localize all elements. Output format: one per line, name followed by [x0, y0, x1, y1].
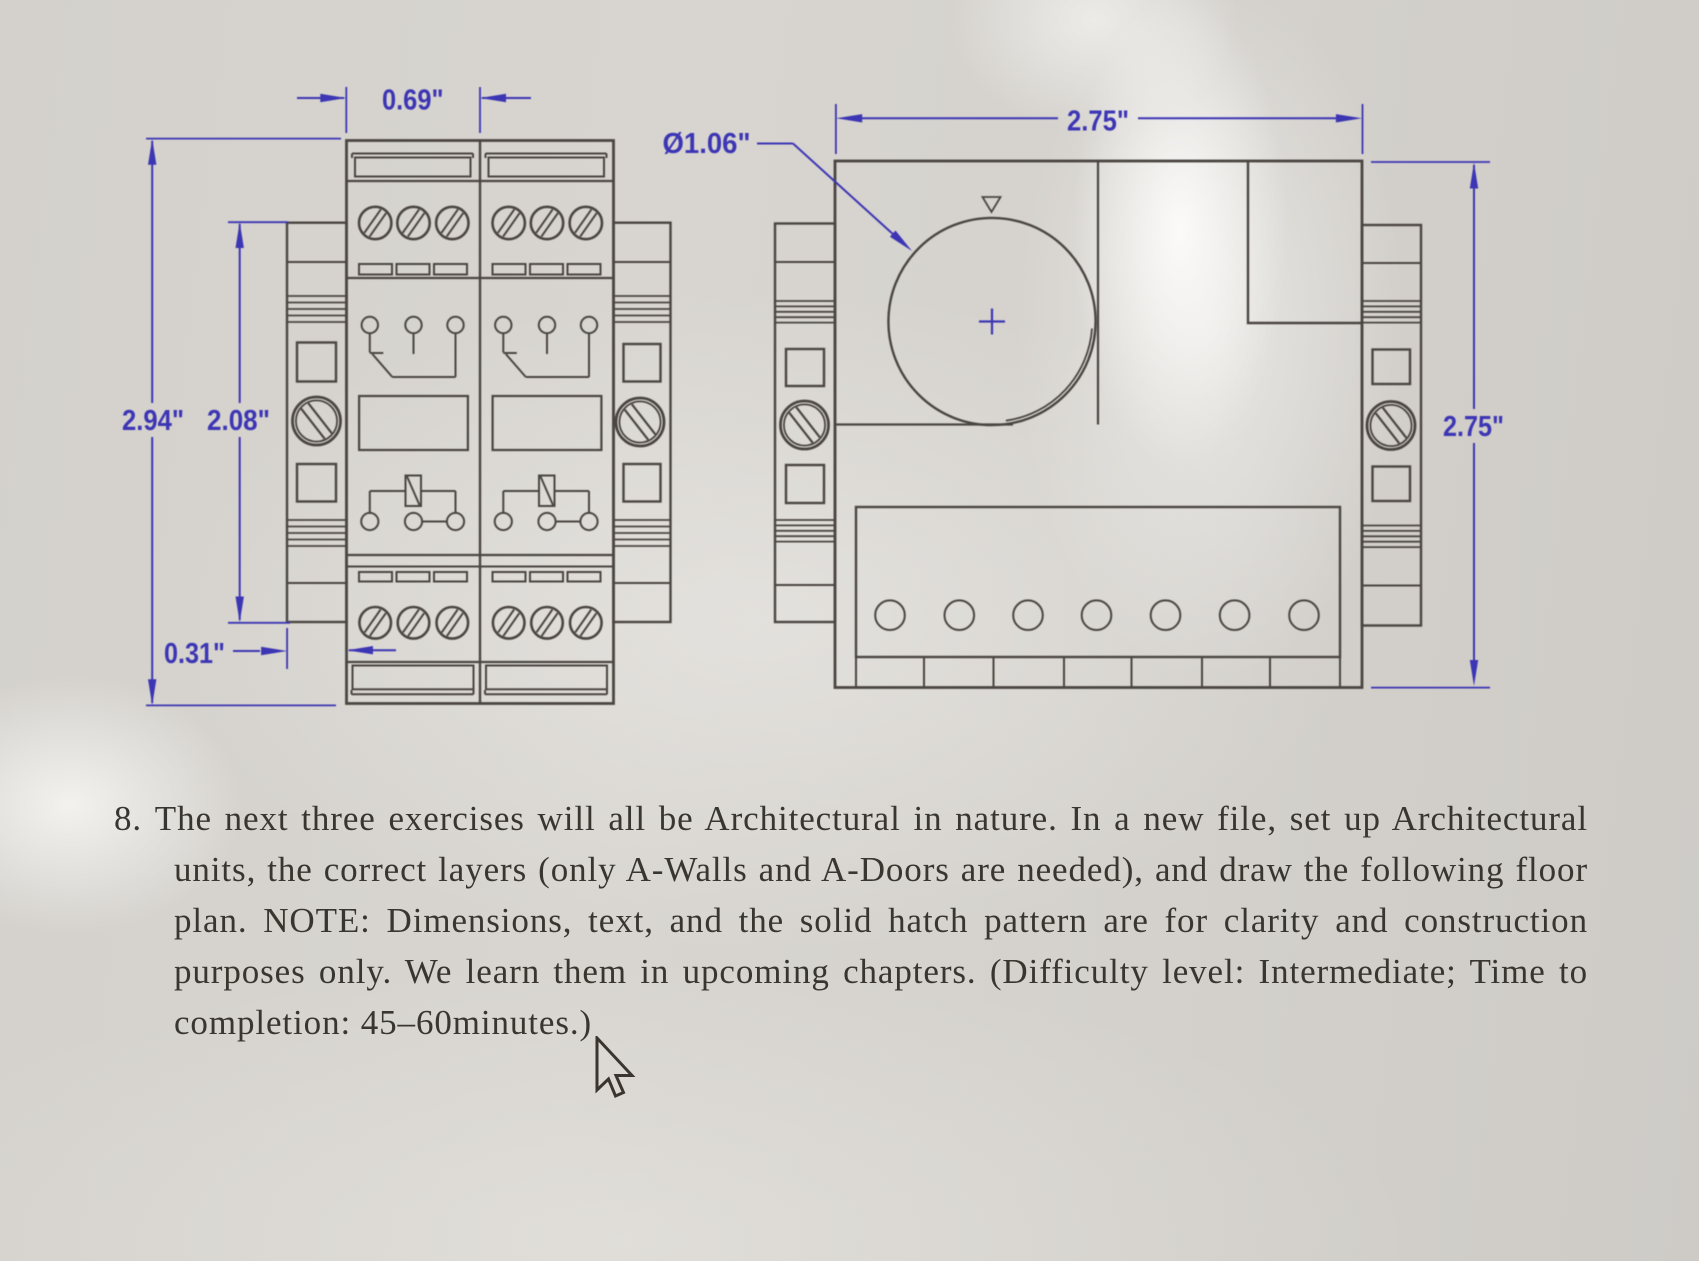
svg-text:2.75": 2.75"	[1067, 106, 1129, 138]
svg-text:0.31": 0.31"	[164, 638, 225, 670]
svg-text:2.08": 2.08"	[207, 405, 270, 437]
svg-text:0.69": 0.69"	[382, 85, 444, 117]
svg-text:2.94": 2.94"	[122, 405, 184, 437]
svg-text:2.75": 2.75"	[1443, 411, 1504, 443]
svg-text:Ø1.06": Ø1.06"	[663, 128, 751, 160]
